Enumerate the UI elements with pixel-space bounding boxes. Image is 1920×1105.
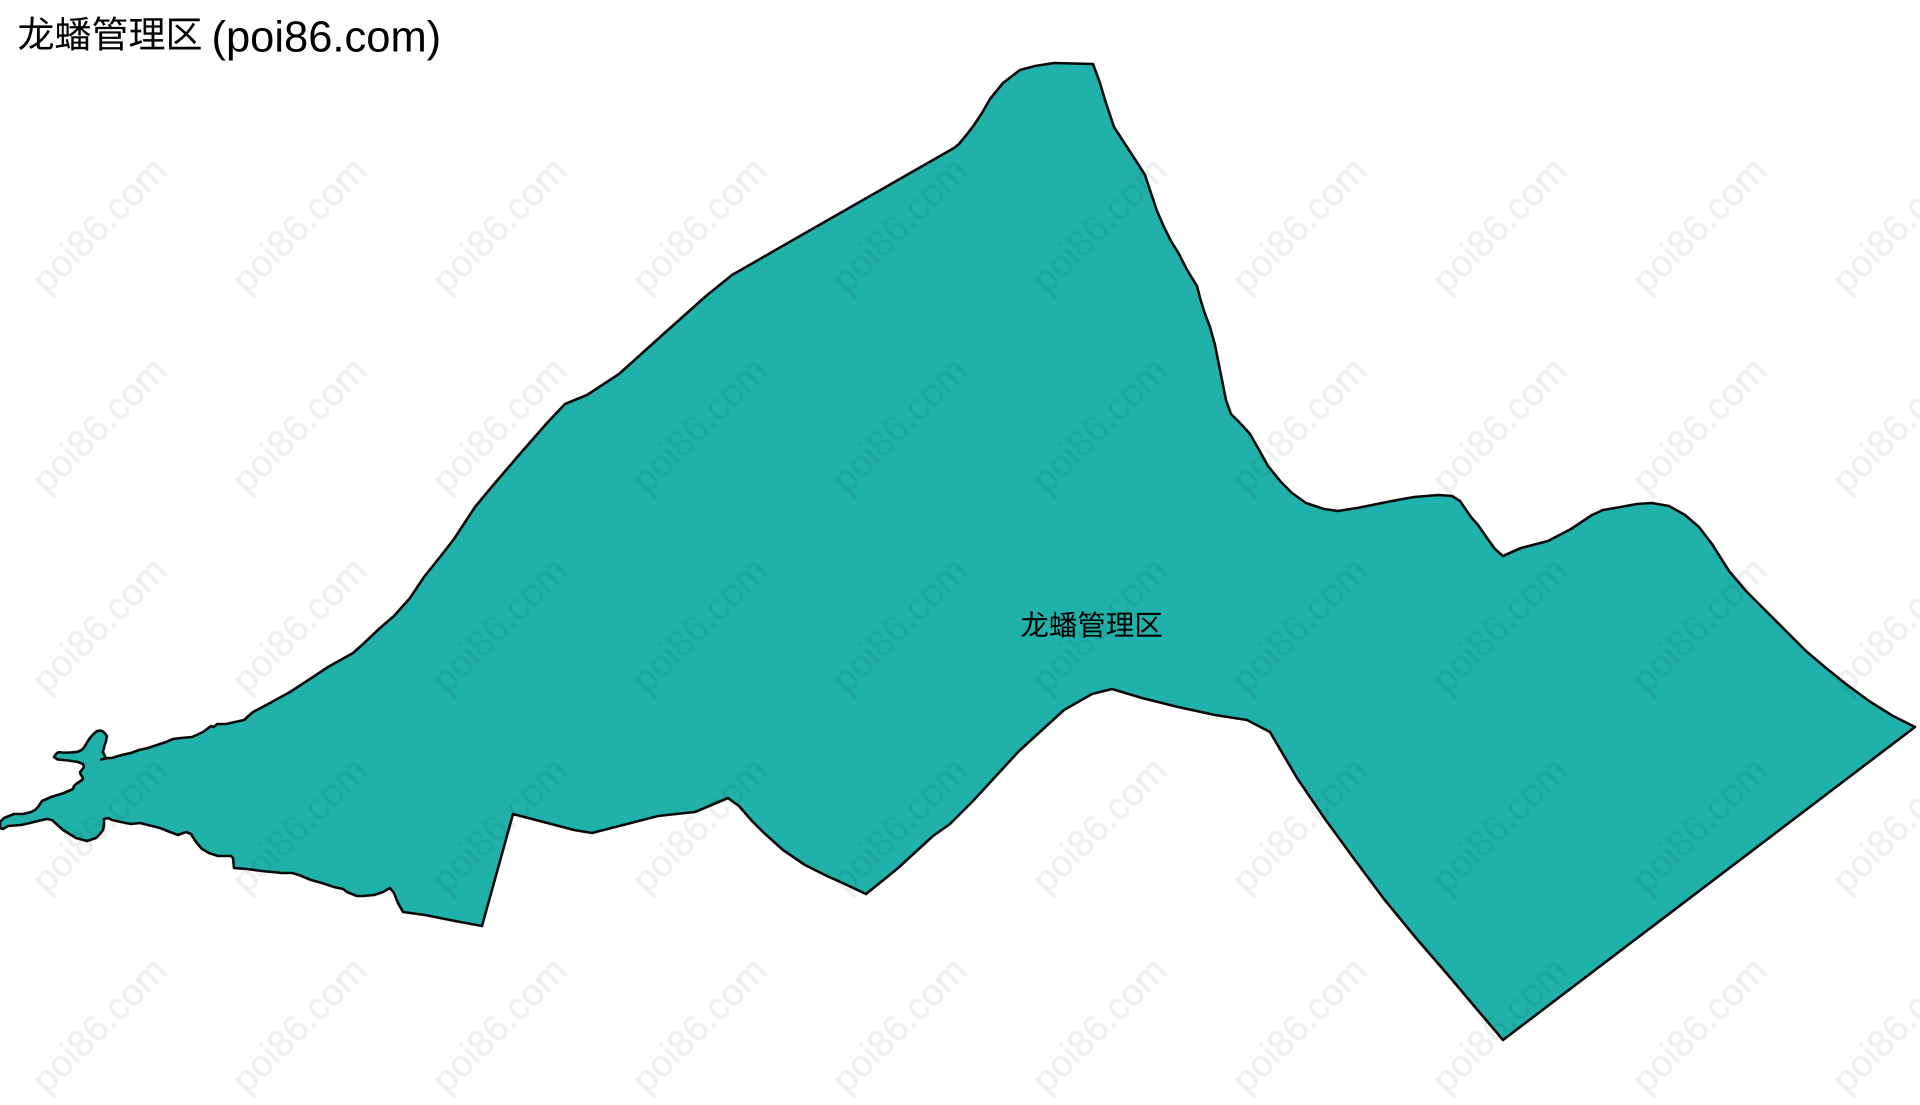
- svg-text:poi86.com: poi86.com: [1623, 949, 1775, 1101]
- svg-text:poi86.com: poi86.com: [1823, 549, 1920, 701]
- svg-text:poi86.com: poi86.com: [1623, 349, 1775, 501]
- svg-text:poi86.com: poi86.com: [1423, 149, 1575, 301]
- svg-text:poi86.com: poi86.com: [623, 949, 775, 1101]
- svg-text:poi86.com: poi86.com: [1823, 149, 1920, 301]
- svg-text:poi86.com: poi86.com: [23, 349, 175, 501]
- svg-text:poi86.com: poi86.com: [1223, 149, 1375, 301]
- svg-text:poi86.com: poi86.com: [1223, 949, 1375, 1101]
- svg-text:(poi86.com): (poi86.com): [212, 14, 442, 62]
- svg-text:poi86.com: poi86.com: [1823, 949, 1920, 1101]
- svg-text:poi86.com: poi86.com: [1623, 149, 1775, 301]
- svg-text:poi86.com: poi86.com: [1823, 349, 1920, 501]
- svg-text:poi86.com: poi86.com: [1423, 349, 1575, 501]
- svg-text:poi86.com: poi86.com: [23, 149, 175, 301]
- svg-text:poi86.com: poi86.com: [1023, 749, 1175, 901]
- svg-text:poi86.com: poi86.com: [23, 949, 175, 1101]
- svg-text:poi86.com: poi86.com: [23, 549, 175, 701]
- svg-text:poi86.com: poi86.com: [1223, 349, 1375, 501]
- svg-text:poi86.com: poi86.com: [223, 349, 375, 501]
- svg-text:poi86.com: poi86.com: [423, 949, 575, 1101]
- svg-text:poi86.com: poi86.com: [423, 149, 575, 301]
- svg-text:poi86.com: poi86.com: [223, 149, 375, 301]
- svg-text:poi86.com: poi86.com: [1023, 949, 1175, 1101]
- svg-text:poi86.com: poi86.com: [223, 949, 375, 1101]
- svg-text:poi86.com: poi86.com: [823, 949, 975, 1101]
